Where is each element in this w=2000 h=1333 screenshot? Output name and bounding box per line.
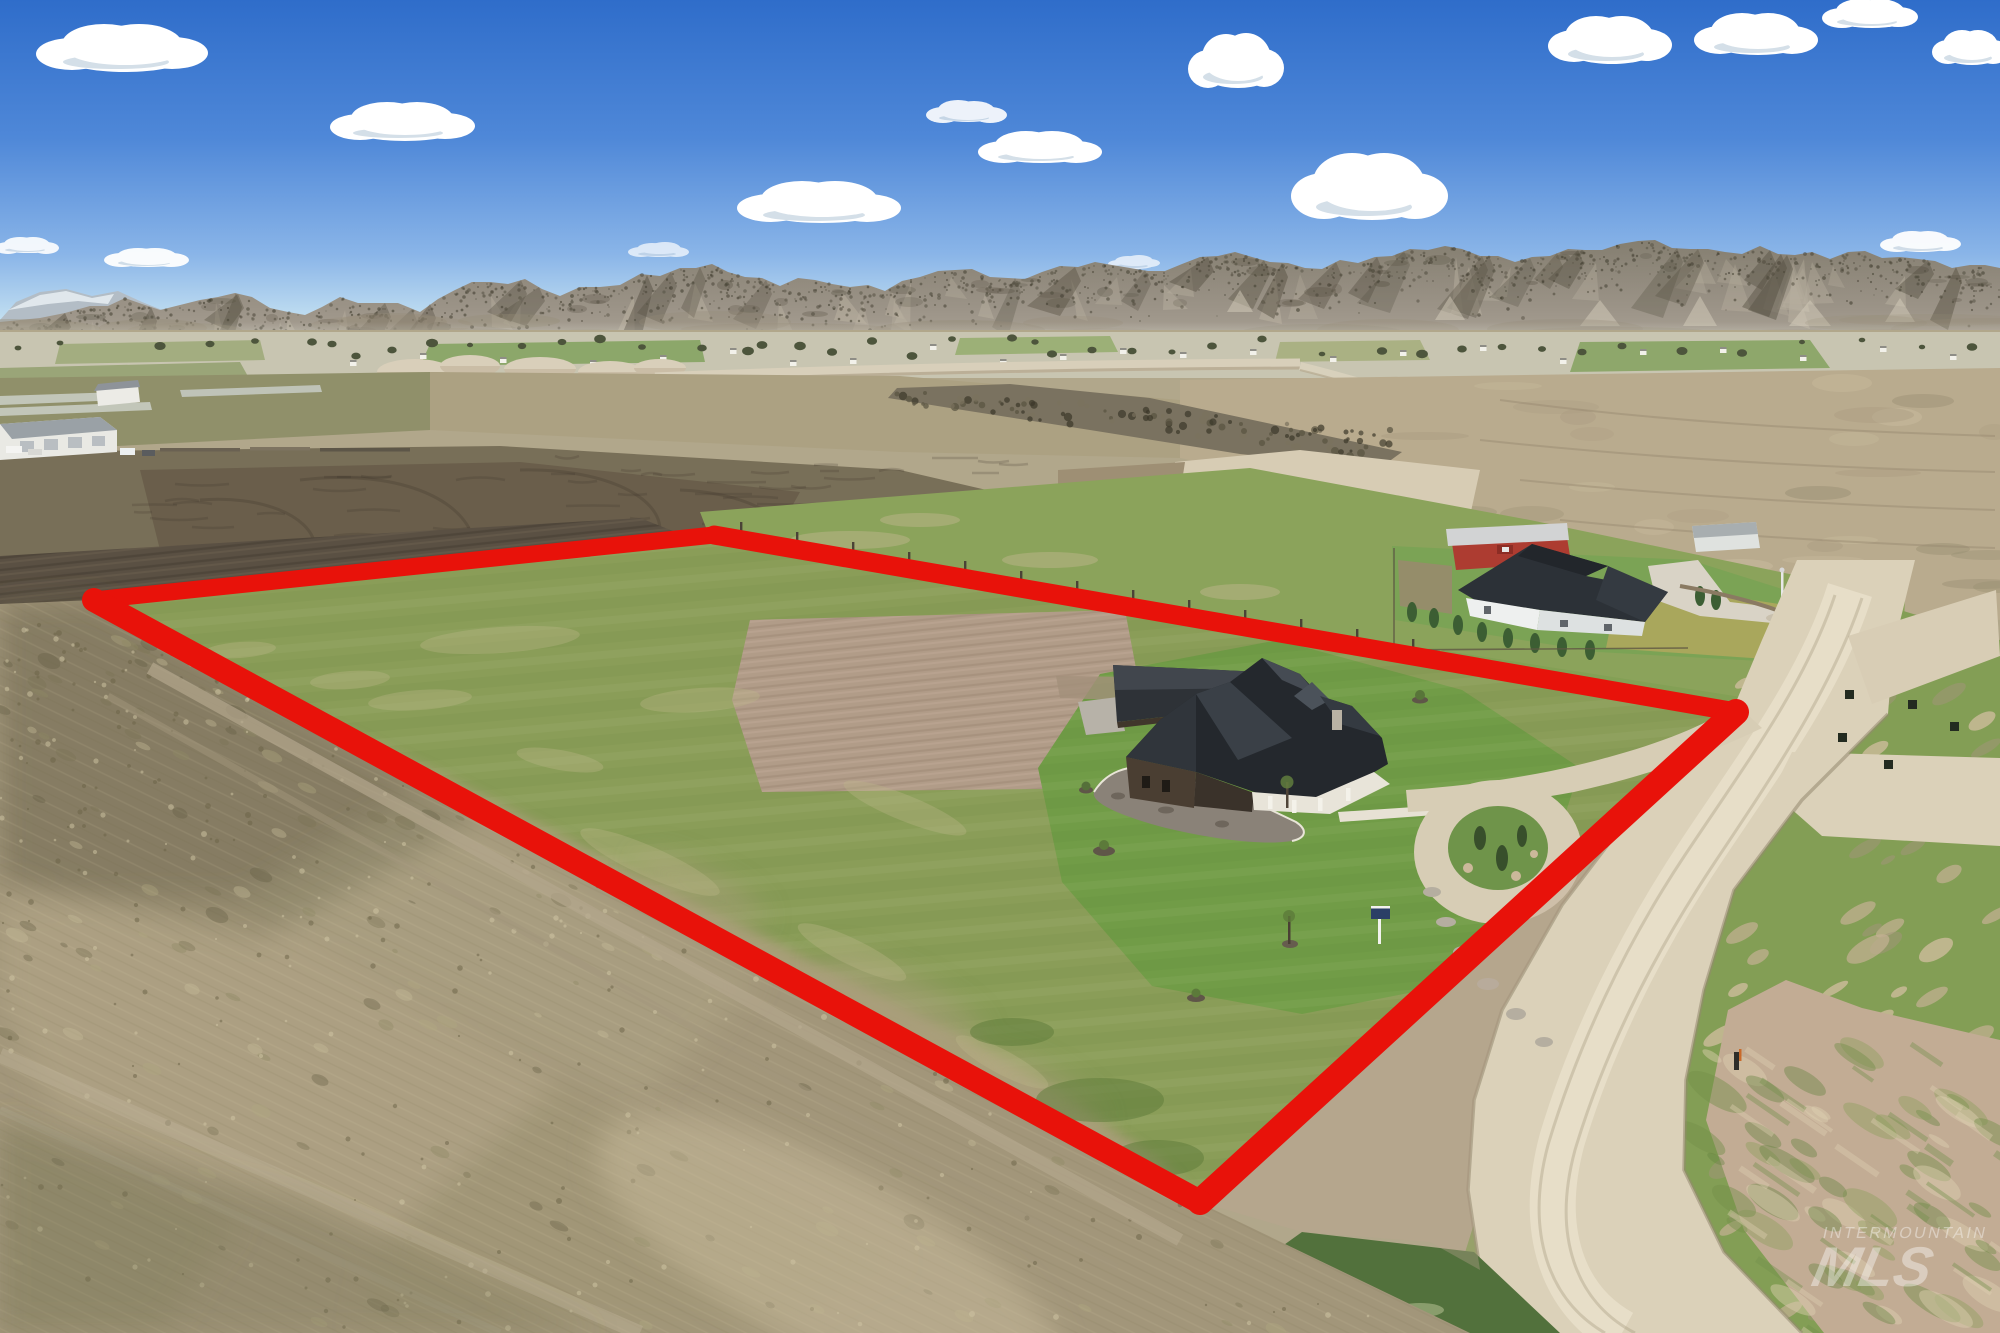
svg-text:MLS: MLS [1807,1236,1939,1298]
